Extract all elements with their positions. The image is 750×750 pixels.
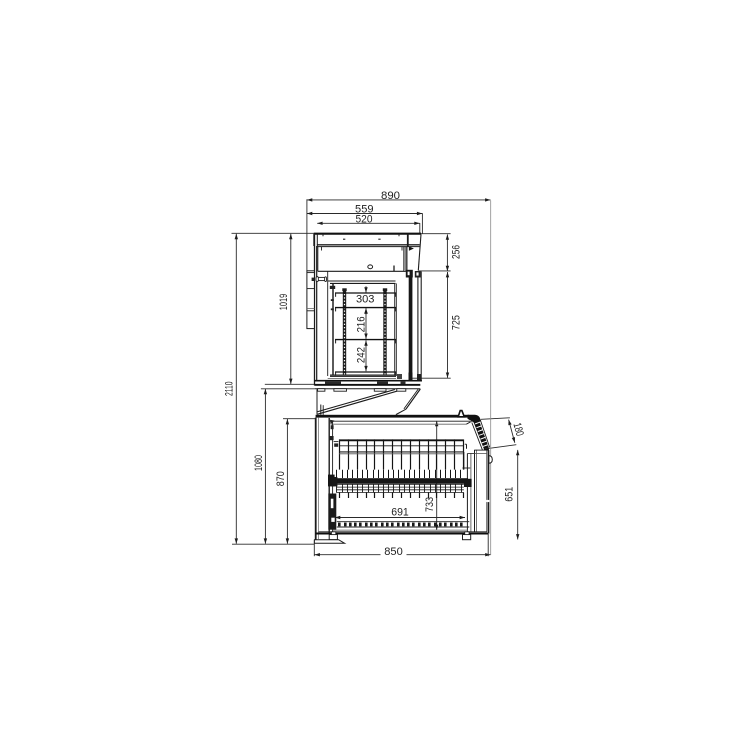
svg-text:733: 733 (424, 497, 436, 512)
svg-text:890: 890 (381, 190, 400, 202)
svg-text:1080: 1080 (253, 455, 265, 471)
svg-text:216: 216 (356, 316, 368, 332)
svg-text:256: 256 (450, 245, 462, 259)
svg-text:651: 651 (504, 487, 516, 502)
svg-text:870: 870 (275, 471, 287, 486)
svg-text:242: 242 (355, 347, 367, 363)
svg-text:725: 725 (451, 315, 463, 330)
svg-text:691: 691 (391, 506, 409, 518)
svg-text:850: 850 (384, 546, 403, 558)
svg-text:2110: 2110 (224, 381, 236, 396)
svg-text:520: 520 (356, 214, 373, 226)
svg-text:1019: 1019 (278, 294, 290, 311)
svg-text:303: 303 (356, 294, 375, 306)
